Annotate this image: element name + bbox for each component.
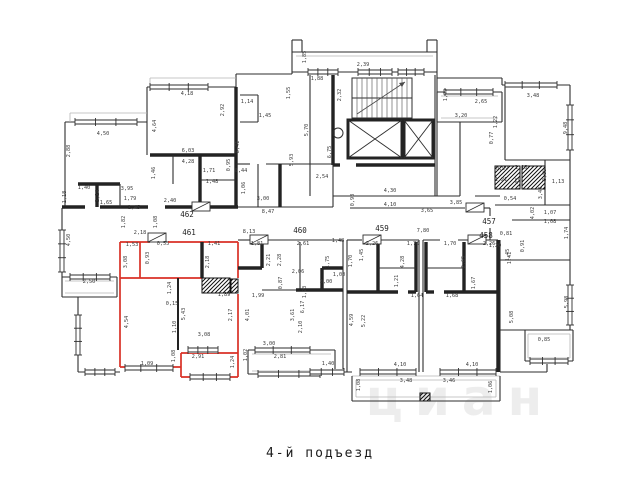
dimension-label: 1,48 [206, 179, 219, 185]
dimension-label: 5,70 [304, 124, 310, 137]
dimension-label: 3,08 [198, 332, 211, 338]
dimension-label: 1,99 [252, 293, 265, 299]
dimension-label: 1,70 [407, 241, 420, 247]
dimension-label: 1,79 [124, 196, 137, 202]
hatched-wall-block [231, 279, 238, 293]
dimension-label: 1,21 [394, 275, 400, 288]
dimension-label: 2,81 [274, 354, 287, 360]
dimension-label: 8,47 [262, 209, 275, 215]
dimension-label: 3,65 [421, 208, 434, 214]
dimension-label: 1,08 [544, 219, 557, 225]
dimension-label: 2,28 [277, 254, 283, 267]
dimension-label: 1,10 [172, 321, 178, 334]
dimension-label: 2,40 [164, 198, 177, 204]
dimension-label: 2,06 [292, 269, 305, 275]
dimension-label: 3,00 [320, 279, 333, 285]
dimension-label: 1,06 [241, 182, 247, 195]
dimension-label: 3,46 [443, 378, 456, 384]
dimension-label: 8,13 [243, 229, 256, 235]
dimension-label: 5,43 [181, 308, 187, 321]
dimension-label: 1,16 [515, 165, 528, 171]
dimension-label: 5,93 [289, 154, 295, 167]
dimension-label: 1,07 [544, 210, 557, 216]
dimension-label: 0,15 [166, 301, 179, 307]
dimension-label: 5,98 [564, 296, 570, 309]
dimension-label: 3,00 [257, 196, 270, 202]
dimension-label: 1,00 [333, 272, 346, 278]
dimension-label: 5,08 [509, 311, 515, 324]
hatched-wall-block [420, 393, 430, 401]
dimension-label: 1,89 [218, 292, 231, 298]
dimension-label: 4,59 [349, 314, 355, 327]
dimension-label: 1,40 [78, 185, 91, 191]
dimension-label: 1,68 [446, 293, 459, 299]
dimension-label: 0,99 [496, 166, 509, 172]
dimension-label: 1,70 [348, 255, 354, 268]
dimension-label: 4,50 [97, 131, 110, 137]
dimension-label: 2,39 [357, 62, 370, 68]
dimension-label: 1,82 [121, 216, 127, 229]
dimension-label: 2,54 [316, 174, 329, 180]
dimension-label: 3,61 [290, 309, 296, 322]
floor-plan-page: циан4,502,884,184,642,926,034,281,463,95… [0, 0, 640, 480]
dimension-label: 4,30 [384, 188, 397, 194]
dimension-label: 2,91 [192, 354, 205, 360]
apartment-number-label: 459 [375, 224, 389, 233]
dimension-label: 3,20 [455, 113, 468, 119]
dimension-label: 4,10 [384, 202, 397, 208]
dimension-label: 1,09 [141, 361, 154, 367]
dimension-label: 0,85 [538, 337, 551, 343]
dimension-label: 3,85 [450, 200, 463, 206]
dimension-label: 0,91 [520, 240, 526, 253]
dimension-label: 4,28 [182, 159, 195, 165]
dimension-label: 1,43 [515, 178, 521, 191]
dimension-label: 4,50 [66, 234, 72, 247]
dimension-label: 2,17 [228, 309, 234, 322]
apartment-number-label: 458 [479, 231, 493, 240]
dimension-label: 2,61 [297, 241, 310, 247]
dimension-label: 1,45 [359, 249, 365, 262]
dimension-label: 0,95 [226, 159, 232, 172]
dimension-label: 2,26 [366, 241, 379, 247]
apartment-number-label: 462 [180, 210, 194, 219]
apartment-number-label: 461 [182, 228, 196, 237]
dimension-label: 4,54 [124, 316, 130, 329]
dimension-label: 3,08 [123, 256, 129, 269]
dimension-label: 1,75 [325, 256, 331, 269]
dimension-label: 0,93 [145, 252, 151, 265]
dimension-label: 1,71 [203, 168, 216, 174]
dimension-label: 0,77 [489, 132, 495, 145]
dimension-label: 2,92 [220, 104, 226, 117]
dimension-label: 2,65 [461, 256, 467, 269]
dimension-label: 1,65 [100, 200, 113, 206]
dimension-label: 2,21 [266, 254, 272, 267]
dimension-label: 1,48 [332, 238, 345, 244]
dimension-label: 0,60 [542, 169, 548, 182]
dimension-label: 1,13 [552, 179, 565, 185]
plan-caption: 4-й подъезд [0, 446, 640, 461]
dimension-label: 4,02 [530, 207, 536, 220]
dimension-label: 1,06 [488, 381, 494, 394]
dimension-label: 6,03 [182, 148, 195, 154]
dimension-label: 3,00 [263, 341, 276, 347]
dimension-label: 2,18 [134, 230, 147, 236]
dimension-label: 1,45 [128, 205, 141, 211]
dimension-label: 0,81 [500, 231, 513, 237]
dimension-label: 2,18 [205, 256, 211, 269]
dimension-label: 1,53 [126, 242, 139, 248]
dimension-label: 7,80 [417, 228, 430, 234]
dimension-label: 0,54 [504, 196, 517, 202]
stair-arrow-head [399, 82, 405, 87]
dimension-label: 1,88 [311, 76, 324, 82]
dimension-label: 3,95 [121, 186, 134, 192]
dimension-label: 5,22 [361, 315, 367, 328]
dimension-label: 2,50 [83, 279, 96, 285]
dimension-label: 1,64 [411, 293, 424, 299]
dimension-label: 1,85 [302, 51, 308, 64]
dimension-label: 4,10 [466, 362, 479, 368]
dimension-label: 1,23 [302, 286, 308, 299]
floor-plan-svg: циан4,502,884,184,642,926,034,281,463,95… [0, 0, 640, 480]
dimension-label: 3,48 [527, 93, 540, 99]
dimension-label: 1,67 [471, 277, 477, 290]
dimension-label: 8,41 [235, 141, 241, 154]
dimension-label: 1,08 [171, 350, 177, 363]
dimension-label: 1,55 [286, 87, 292, 100]
dimension-label: 1,02 [243, 349, 249, 362]
apartment-number-label: 457 [482, 217, 496, 226]
dimension-label: 4,28 [400, 256, 406, 269]
dimension-label: 0,87 [278, 277, 284, 290]
dimension-label: 2,88 [66, 145, 72, 158]
dimension-label: 1,03 [443, 89, 449, 102]
apartment-number-label: 460 [293, 226, 307, 235]
dimension-label: 1,14 [241, 99, 254, 105]
dimension-label: 1,08 [153, 216, 159, 229]
dimension-label: 1,24 [230, 356, 236, 369]
dimension-label: 1,46 [151, 167, 157, 180]
dimension-label: 0,55 [157, 241, 170, 247]
dimension-label: 4,18 [181, 91, 194, 97]
dimension-label: 6,75 [327, 146, 333, 159]
dimension-label: 1,41 [208, 241, 221, 247]
dimension-label: 1,24 [167, 282, 173, 295]
dimension-label: 3,48 [400, 378, 413, 384]
dimension-label: 1,45 [505, 249, 511, 262]
dimension-label: 1,81 [251, 241, 264, 247]
dimension-label: 0,44 [235, 168, 248, 174]
dimension-label: 3,44 [538, 187, 544, 200]
dimension-label: 4,64 [152, 120, 158, 133]
dimension-label: 6,17 [300, 301, 306, 314]
dimension-label: 2,65 [475, 99, 488, 105]
dimension-label: 2,32 [337, 89, 343, 102]
dimension-label: 0,98 [350, 194, 356, 207]
dimension-label: 1,40 [322, 361, 335, 367]
dimension-label: 1,08 [356, 379, 362, 392]
dimension-label: 1,21 [495, 177, 508, 183]
dimension-label: 1,74 [564, 227, 570, 240]
dimension-label: 1,18 [62, 191, 68, 204]
dimension-label: 4,01 [245, 309, 251, 322]
dimension-label: 4,10 [394, 362, 407, 368]
dimension-label: 9,48 [563, 122, 569, 135]
dimension-label: 1,70 [444, 241, 457, 247]
hatched-wall-block [202, 278, 230, 293]
dimension-label: 1,45 [259, 113, 272, 119]
dimension-label: 2,26 [483, 241, 496, 247]
dimension-label: 2,10 [298, 321, 304, 334]
dimension-label: 1,22 [493, 116, 499, 129]
watermark: циан [366, 369, 554, 427]
